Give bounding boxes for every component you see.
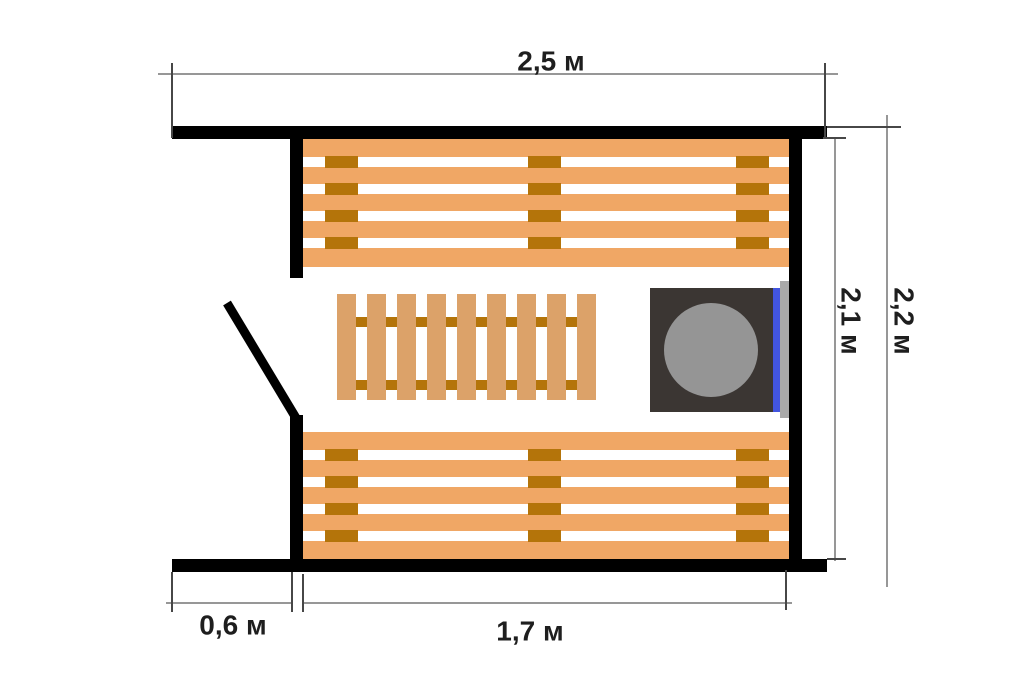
dimension-door-offset: 0,6 м xyxy=(166,572,292,641)
bench-tie xyxy=(528,503,561,515)
bench-tie xyxy=(528,449,561,461)
bench-tie xyxy=(736,237,769,249)
duckboard-slat xyxy=(397,294,416,400)
bench-tie xyxy=(528,183,561,195)
duckboard-slat xyxy=(547,294,566,400)
dim-label-width-total: 2,5 м xyxy=(517,46,584,77)
dimension-top-width: 2,5 м xyxy=(158,46,838,139)
wall-left-lower xyxy=(290,415,303,572)
dim-label-height-inner: 2,1 м xyxy=(836,287,867,354)
wall-left-upper xyxy=(290,126,303,278)
floor-plan-canvas: 2,5 м 2,1 м 2,2 м 0,6 м 1,7 м xyxy=(0,0,1024,696)
bench-tie xyxy=(325,210,358,222)
bench-tie xyxy=(736,210,769,222)
bench-tie xyxy=(736,530,769,542)
dim-label-bench-length: 1,7 м xyxy=(496,616,563,647)
bench-tie xyxy=(528,476,561,488)
wall-right xyxy=(789,126,802,572)
bench-tie xyxy=(325,237,358,249)
duckboard-slat xyxy=(517,294,536,400)
bench-tie xyxy=(528,156,561,168)
duckboard-slat xyxy=(427,294,446,400)
bench-tie xyxy=(325,503,358,515)
bench-tie xyxy=(325,449,358,461)
floor-plan-drawing: 2,5 м 2,1 м 2,2 м 0,6 м 1,7 м xyxy=(0,0,1024,696)
bench-tie xyxy=(528,210,561,222)
wall-top xyxy=(172,126,827,139)
bench-tie xyxy=(325,183,358,195)
bench-tie xyxy=(325,156,358,168)
door-leaf xyxy=(227,303,296,418)
bench-tie xyxy=(736,183,769,195)
top-bench xyxy=(303,139,789,267)
bench-tie xyxy=(736,476,769,488)
stove-ledge xyxy=(780,281,789,418)
bench-tie xyxy=(736,156,769,168)
bench-tie xyxy=(736,503,769,515)
dim-label-door-offset: 0,6 м xyxy=(199,610,266,641)
duckboard-slat xyxy=(367,294,386,400)
bench-tie xyxy=(528,237,561,249)
dim-label-height-outer: 2,2 м xyxy=(889,287,920,354)
stove-top-circle xyxy=(664,303,758,397)
bench-tie xyxy=(325,476,358,488)
duckboard-slat xyxy=(457,294,476,400)
bench-tie xyxy=(736,449,769,461)
duckboard-slat xyxy=(577,294,596,400)
dimension-inner-height: 2,1 м xyxy=(823,137,867,561)
stove-glass-screen xyxy=(773,288,780,412)
floor-duckboard xyxy=(337,294,596,400)
dimension-bench-length: 1,7 м xyxy=(303,570,792,647)
bottom-bench xyxy=(303,432,789,559)
bench-tie xyxy=(325,530,358,542)
bench-tie xyxy=(528,530,561,542)
duckboard-slat xyxy=(337,294,356,400)
stove xyxy=(650,281,789,418)
duckboard-slat xyxy=(487,294,506,400)
wall-bottom xyxy=(172,559,827,572)
